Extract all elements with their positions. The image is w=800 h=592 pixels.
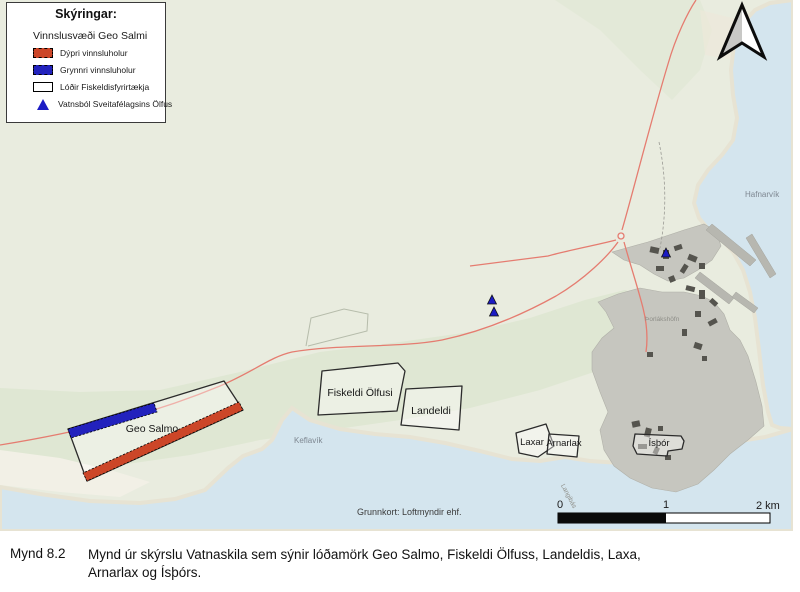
scale-tick-1: 1 [663, 499, 669, 511]
label-fiskeldi-olfusi: Fiskeldi Ölfusi [327, 387, 392, 399]
legend-item-label: Grynnri vinnsluholur [60, 65, 136, 75]
label-arnarlax: Arnarlax [546, 438, 582, 449]
map-attribution: Grunnkort: Loftmyndir ehf. [357, 507, 462, 517]
map-figure: Geo Salmo Fiskeldi Ölfusi Landeldi Laxar… [0, 0, 793, 531]
legend-item-label: Dýpri vinnsluholur [60, 48, 128, 58]
report-page: Geo Salmo Fiskeldi Ölfusi Landeldi Laxar… [0, 0, 800, 592]
map-legend: Skýringar: Vinnslusvæði Geo Salmi Dýpri … [6, 2, 166, 123]
legend-item-water-source: Vatnsból Sveitafélagsins Ölfus [33, 98, 161, 110]
legend-item-shallow-wells: Grynnri vinnsluholur [33, 64, 161, 76]
figure-caption-text: Mynd úr skýrslu Vatnaskila sem sýnir lóð… [88, 546, 788, 582]
legend-title: Skýringar: [11, 7, 161, 21]
legend-item-parcels: Lóðir Fiskeldisfyrirtækja [33, 81, 161, 93]
legend-item-label: Lóðir Fiskeldisfyrirtækja [60, 82, 149, 92]
legend-subtitle: Vinnslusvæði Geo Salmi [33, 30, 161, 42]
caption-line-2: Arnarlax og Ísþórs. [88, 564, 788, 582]
label-landeldi: Landeldi [411, 405, 451, 417]
parcels-swatch [33, 82, 53, 92]
scale-tick-0: 0 [557, 499, 563, 511]
shallow-wells-swatch [33, 65, 53, 75]
scale-tick-2: 2 km [756, 500, 780, 512]
label-keflavik: Keflavík [294, 436, 323, 445]
label-thorlakshofn: Þorlákshöfn [645, 316, 680, 323]
label-hafnarvik: Hafnarvík [745, 190, 780, 199]
caption-line-1: Mynd úr skýrslu Vatnaskila sem sýnir lóð… [88, 546, 788, 564]
label-geo-salmo: Geo Salmo [126, 423, 179, 435]
label-laxar: Laxar [520, 437, 544, 448]
legend-item-label: Vatnsból Sveitafélagsins Ölfus [58, 99, 172, 109]
deep-wells-swatch [33, 48, 53, 58]
roundabout [618, 233, 624, 239]
figure-number: Mynd 8.2 [10, 546, 66, 561]
legend-item-deep-wells: Dýpri vinnsluholur [33, 47, 161, 59]
label-isthor: Ísþór [648, 438, 669, 449]
water-source-triangle-icon [37, 99, 49, 110]
